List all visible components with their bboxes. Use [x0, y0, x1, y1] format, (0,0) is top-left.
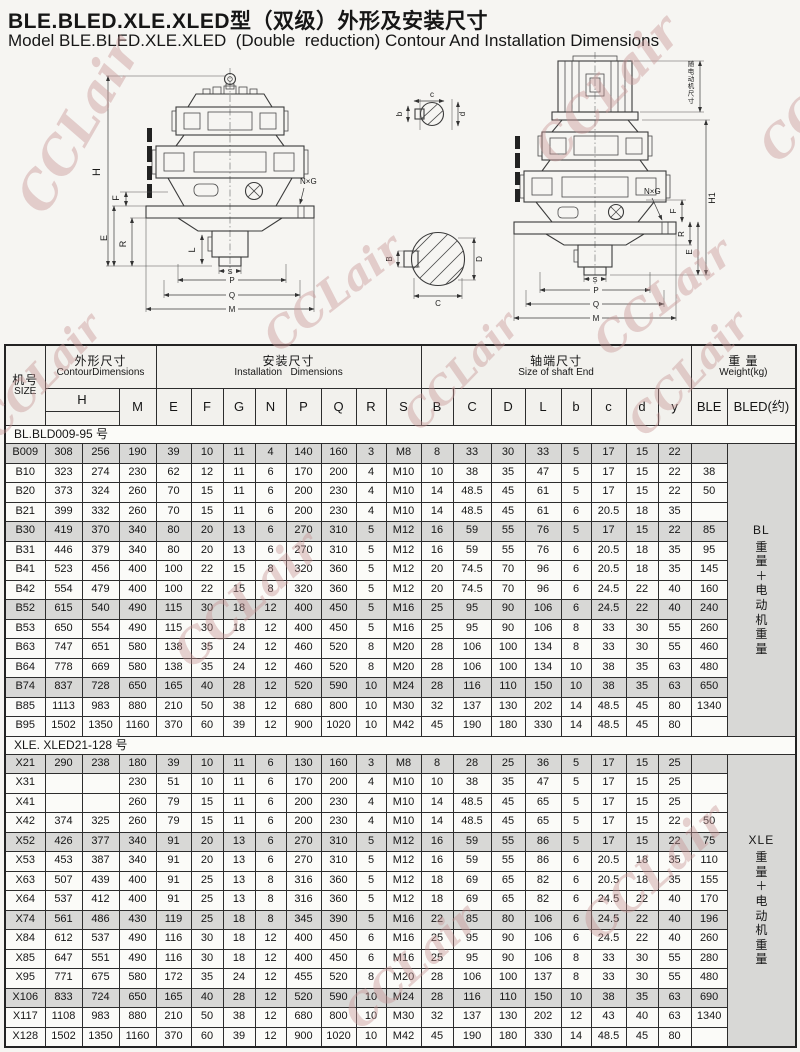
value-cell: 11 [223, 463, 255, 483]
value-cell: 439 [82, 871, 119, 891]
value-cell: 28 [421, 969, 453, 989]
value-cell: 479 [82, 580, 119, 600]
value-cell: 10 [356, 717, 386, 737]
value-cell: 260 [119, 813, 156, 833]
col-header-R: R [356, 389, 386, 426]
value-cell: 95 [691, 541, 727, 561]
col-header-Q: Q [321, 389, 356, 426]
value-cell: 4 [356, 813, 386, 833]
value-cell: 55 [491, 541, 525, 561]
input-shaft-section-view: c b d [395, 90, 467, 130]
value-cell: 6 [561, 852, 591, 872]
value-cell: M12 [386, 832, 421, 852]
value-cell: 180 [491, 717, 525, 737]
value-cell: 490 [119, 619, 156, 639]
value-cell: 270 [286, 522, 321, 542]
value-cell: 480 [691, 969, 727, 989]
value-cell: 155 [691, 871, 727, 891]
value-cell: 150 [525, 988, 561, 1008]
value-cell: 5 [356, 600, 386, 620]
weight-note-prefix: BL [753, 523, 770, 538]
value-cell: 377 [82, 832, 119, 852]
value-cell: 55 [658, 949, 691, 969]
value-cell: 15 [191, 502, 223, 522]
value-cell: 48.5 [453, 813, 491, 833]
value-cell: 373 [45, 483, 82, 503]
value-cell: M42 [386, 717, 421, 737]
value-cell: 33 [591, 969, 626, 989]
value-cell: 1340 [691, 697, 727, 717]
value-cell: 90 [491, 949, 525, 969]
value-cell: 5 [561, 754, 591, 774]
value-cell: 537 [45, 891, 82, 911]
value-cell [691, 717, 727, 737]
value-cell: 6 [561, 891, 591, 911]
value-cell: 65 [525, 793, 561, 813]
value-cell: 76 [525, 522, 561, 542]
value-cell: 308 [45, 444, 82, 464]
value-cell: 6 [561, 502, 591, 522]
table-row: X74561486430119251883453905M162285801066… [5, 910, 796, 930]
table-row: X5345338734091201362703105M1216595586620… [5, 852, 796, 872]
table-row: B1032327423062121161702004M1010383547517… [5, 463, 796, 483]
value-cell: 1350 [82, 717, 119, 737]
value-cell: 20.5 [591, 852, 626, 872]
value-cell: 590 [321, 988, 356, 1008]
value-cell: 24 [223, 658, 255, 678]
value-cell: 130 [491, 1008, 525, 1028]
value-cell: 25 [658, 793, 691, 813]
value-cell: 325 [82, 813, 119, 833]
value-cell: 5 [561, 463, 591, 483]
value-cell: 106 [525, 910, 561, 930]
value-cell: 25 [421, 930, 453, 950]
value-cell: 340 [119, 852, 156, 872]
value-cell: 47 [525, 774, 561, 794]
value-cell: 3 [356, 444, 386, 464]
value-cell: 1160 [119, 717, 156, 737]
value-cell: 160 [321, 754, 356, 774]
value-cell: 80 [658, 1027, 691, 1047]
value-cell: 35 [626, 658, 658, 678]
value-cell: 25 [421, 619, 453, 639]
value-cell: 387 [82, 852, 119, 872]
value-cell: 100 [491, 639, 525, 659]
value-cell: 28 [421, 678, 453, 698]
size-cell: B41 [5, 561, 45, 581]
dimensions-table: 机号 SIZE 外形尺寸 ContourDimensions 安装尺寸 Inst… [4, 344, 797, 1048]
value-cell: M10 [386, 502, 421, 522]
value-cell: 200 [286, 502, 321, 522]
value-cell: 6 [561, 930, 591, 950]
value-cell: 116 [453, 678, 491, 698]
value-cell: M16 [386, 600, 421, 620]
value-cell: M16 [386, 949, 421, 969]
dimensions-table-wrapper: 机号 SIZE 外形尺寸 ContourDimensions 安装尺寸 Inst… [4, 344, 797, 1048]
size-cell: B74 [5, 678, 45, 698]
value-cell: 38 [691, 463, 727, 483]
value-cell: 80 [658, 717, 691, 737]
size-cell: X41 [5, 793, 45, 813]
value-cell: 747 [45, 639, 82, 659]
value-cell: 615 [45, 600, 82, 620]
value-cell: 50 [191, 1008, 223, 1028]
value-cell: M20 [386, 658, 421, 678]
value-cell: 12 [255, 969, 286, 989]
value-cell: 28 [453, 754, 491, 774]
value-cell: 290 [45, 754, 82, 774]
col-header-H-empty [45, 412, 119, 426]
value-cell: 106 [453, 639, 491, 659]
value-cell: 6 [255, 793, 286, 813]
value-cell: 32 [421, 1008, 453, 1028]
value-cell: 240 [691, 600, 727, 620]
value-cell: 260 [691, 619, 727, 639]
value-cell: M10 [386, 793, 421, 813]
value-cell: 455 [286, 969, 321, 989]
value-cell: 15 [223, 580, 255, 600]
value-cell: 6 [561, 600, 591, 620]
value-cell: 47 [525, 463, 561, 483]
value-cell: 430 [119, 910, 156, 930]
value-cell: 20 [191, 832, 223, 852]
value-cell: 260 [119, 502, 156, 522]
weight-note-cell: XLE重量＋电动机重量 [727, 754, 796, 1047]
value-cell: 20.5 [591, 561, 626, 581]
value-cell: 20 [421, 580, 453, 600]
value-cell: 18 [626, 502, 658, 522]
value-cell: 38 [591, 678, 626, 698]
value-cell: 310 [321, 832, 356, 852]
size-cell: X117 [5, 1008, 45, 1028]
col-header-S: S [386, 389, 421, 426]
value-cell: 17 [591, 522, 626, 542]
value-cell: 25 [421, 600, 453, 620]
dim-label-p-right: P [593, 286, 598, 295]
value-cell: 10 [561, 658, 591, 678]
value-cell: 1340 [691, 1008, 727, 1028]
size-cell: X128 [5, 1027, 45, 1047]
value-cell: 460 [286, 658, 321, 678]
value-cell: 880 [119, 697, 156, 717]
table-row: X5242637734091201362703105M1216595586517… [5, 832, 796, 852]
value-cell: 1502 [45, 1027, 82, 1047]
value-cell: 172 [156, 969, 191, 989]
value-cell: 20 [191, 852, 223, 872]
value-cell: 95 [453, 600, 491, 620]
dim-label-r: R [118, 240, 128, 247]
value-cell: 39 [223, 717, 255, 737]
table-row: B647786695801383524124605208M20281061001… [5, 658, 796, 678]
value-cell: 75 [691, 832, 727, 852]
value-cell: 8 [561, 639, 591, 659]
value-cell: 15 [223, 561, 255, 581]
value-cell: 5 [561, 774, 591, 794]
weight-note-prefix: XLE [749, 833, 775, 848]
value-cell: 12 [255, 949, 286, 969]
value-cell: 4 [356, 463, 386, 483]
value-cell: 100 [156, 561, 191, 581]
value-cell: 17 [591, 832, 626, 852]
dim-label-m-right: M [593, 314, 600, 323]
value-cell: 669 [82, 658, 119, 678]
value-cell: 230 [321, 793, 356, 813]
size-cell: B64 [5, 658, 45, 678]
value-cell: 12 [255, 717, 286, 737]
size-cell: X84 [5, 930, 45, 950]
value-cell: 11 [223, 444, 255, 464]
value-cell: 18 [223, 619, 255, 639]
value-cell: 45 [491, 483, 525, 503]
size-cell: X106 [5, 988, 45, 1008]
value-cell: 17 [591, 483, 626, 503]
value-cell: 90 [491, 619, 525, 639]
value-cell: 650 [119, 678, 156, 698]
value-cell: 238 [82, 754, 119, 774]
dim-label-C: C [435, 299, 441, 308]
value-cell: M16 [386, 930, 421, 950]
value-cell: 5 [561, 832, 591, 852]
value-cell: 22 [626, 600, 658, 620]
value-cell: 39 [223, 1027, 255, 1047]
col-header-N: N [255, 389, 286, 426]
value-cell: 200 [286, 483, 321, 503]
value-cell: 400 [286, 619, 321, 639]
group-header-installation: 安装尺寸 Installation Dimensions [156, 345, 421, 389]
value-cell: 5 [356, 522, 386, 542]
value-cell: 48.5 [453, 793, 491, 813]
table-row: B637476515801383524124605208M20281061001… [5, 639, 796, 659]
value-cell: 35 [658, 852, 691, 872]
size-cell: X95 [5, 969, 45, 989]
dim-label-motor: 随电动机尺寸 [688, 59, 695, 105]
value-cell: 983 [82, 1008, 119, 1028]
value-cell: 400 [119, 580, 156, 600]
dim-label-q-right: Q [593, 300, 599, 309]
value-cell: 5 [561, 793, 591, 813]
value-cell: 18 [223, 910, 255, 930]
value-cell: 59 [453, 522, 491, 542]
table-section-label-row: XLE. XLED21-128 号 [5, 736, 796, 754]
value-cell: 374 [45, 813, 82, 833]
value-cell: 6 [255, 813, 286, 833]
value-cell: M12 [386, 891, 421, 911]
value-cell: 453 [45, 852, 82, 872]
value-cell: 4 [356, 502, 386, 522]
page-title-en: Model BLE.BLED.XLE.XLED (Double reductio… [8, 31, 659, 51]
size-cell: B85 [5, 697, 45, 717]
value-cell: M10 [386, 463, 421, 483]
value-cell: 74.5 [453, 580, 491, 600]
group-header-contour: 外形尺寸 ContourDimensions [45, 345, 156, 389]
value-cell: 6 [255, 522, 286, 542]
value-cell: 96 [525, 580, 561, 600]
value-cell: 316 [286, 871, 321, 891]
value-cell: 1160 [119, 1027, 156, 1047]
dim-label-r-right: R [677, 231, 686, 237]
value-cell: M24 [386, 678, 421, 698]
left-gearbox-drawing: H F E R L S P Q [91, 68, 317, 314]
col-header-E: E [156, 389, 191, 426]
value-cell: 5 [356, 891, 386, 911]
size-cell: B53 [5, 619, 45, 639]
value-cell: 85 [453, 910, 491, 930]
value-cell: 270 [286, 541, 321, 561]
value-cell: 22 [626, 580, 658, 600]
value-cell: 12 [191, 463, 223, 483]
value-cell: 18 [626, 561, 658, 581]
value-cell: 38 [591, 658, 626, 678]
value-cell: 96 [525, 561, 561, 581]
value-cell: 180 [491, 1027, 525, 1047]
dim-label-c-small: c [430, 90, 434, 99]
value-cell: 30 [191, 949, 223, 969]
value-cell: 210 [156, 1008, 191, 1028]
value-cell: 771 [45, 969, 82, 989]
value-cell: 140 [286, 444, 321, 464]
value-cell: 106 [453, 658, 491, 678]
value-cell: 35 [491, 463, 525, 483]
dim-label-f-right: F [669, 208, 678, 213]
value-cell: 45 [626, 1027, 658, 1047]
value-cell: 520 [286, 678, 321, 698]
value-cell: 22 [658, 463, 691, 483]
value-cell: 10 [421, 774, 453, 794]
value-cell: 1020 [321, 717, 356, 737]
value-cell: 100 [491, 658, 525, 678]
value-cell: 6 [255, 852, 286, 872]
value-cell: 6 [255, 754, 286, 774]
value-cell: 15 [626, 483, 658, 503]
value-cell: 202 [525, 697, 561, 717]
value-cell: 100 [156, 580, 191, 600]
value-cell: 400 [286, 930, 321, 950]
value-cell: 310 [321, 852, 356, 872]
value-cell: 370 [82, 522, 119, 542]
value-cell [82, 774, 119, 794]
value-cell: 345 [286, 910, 321, 930]
value-cell: 10 [356, 678, 386, 698]
value-cell: 55 [491, 832, 525, 852]
value-cell: 8 [356, 969, 386, 989]
weight-note-cell: BL重量＋电动机重量 [727, 444, 796, 737]
value-cell: 28 [421, 639, 453, 659]
value-cell: 14 [421, 813, 453, 833]
value-cell: 40 [658, 580, 691, 600]
value-cell: 55 [491, 852, 525, 872]
value-cell: 138 [156, 639, 191, 659]
value-cell: M30 [386, 1008, 421, 1028]
value-cell: 18 [223, 949, 255, 969]
value-cell: 11 [223, 754, 255, 774]
value-cell: 8 [356, 658, 386, 678]
table-row: X6453741240091251383163605M1218696582624… [5, 891, 796, 911]
value-cell: 210 [156, 697, 191, 717]
col-header-G: G [223, 389, 255, 426]
value-cell: 10 [356, 988, 386, 1008]
value-cell: 3 [356, 754, 386, 774]
value-cell: 537 [82, 930, 119, 950]
value-cell: 486 [82, 910, 119, 930]
value-cell: 360 [321, 891, 356, 911]
value-cell: 5 [356, 580, 386, 600]
value-cell: 13 [223, 871, 255, 891]
value-cell: 45 [626, 697, 658, 717]
value-cell: 38 [453, 774, 491, 794]
value-cell [691, 444, 727, 464]
value-cell: 14 [561, 697, 591, 717]
table-row: B42554479400100221583203605M122074.57096… [5, 580, 796, 600]
value-cell: 490 [119, 949, 156, 969]
value-cell: 12 [255, 639, 286, 659]
dim-label-m: M [229, 305, 236, 314]
value-cell: 79 [156, 813, 191, 833]
value-cell: 651 [82, 639, 119, 659]
value-cell: 12 [255, 697, 286, 717]
value-cell: 460 [286, 639, 321, 659]
value-cell: 106 [525, 619, 561, 639]
value-cell: 12 [255, 619, 286, 639]
value-cell: 33 [525, 444, 561, 464]
value-cell: 25 [491, 754, 525, 774]
value-cell: 16 [421, 832, 453, 852]
value-cell: 12 [255, 1008, 286, 1028]
value-cell: 15 [191, 793, 223, 813]
value-cell: 11 [223, 793, 255, 813]
table-row: X117110898388021050381268080010M30321371… [5, 1008, 796, 1028]
value-cell: 110 [491, 678, 525, 698]
size-cell: X42 [5, 813, 45, 833]
value-cell: 15 [626, 813, 658, 833]
col-header-L: L [525, 389, 561, 426]
value-cell: 32 [421, 697, 453, 717]
value-cell: 15 [626, 774, 658, 794]
value-cell: 332 [82, 502, 119, 522]
size-cell: X63 [5, 871, 45, 891]
size-cell: B10 [5, 463, 45, 483]
table-row: B3144637934080201362703105M1216595576620… [5, 541, 796, 561]
value-cell: 33 [591, 639, 626, 659]
value-cell: 400 [119, 561, 156, 581]
value-cell: 137 [525, 969, 561, 989]
value-cell: 8 [421, 754, 453, 774]
value-cell: 24 [223, 969, 255, 989]
value-cell: 48.5 [591, 697, 626, 717]
value-cell: 165 [156, 988, 191, 1008]
value-cell: 900 [286, 717, 321, 737]
value-cell: 450 [321, 949, 356, 969]
value-cell: 69 [453, 871, 491, 891]
value-cell: 22 [626, 930, 658, 950]
value-cell: 17 [591, 754, 626, 774]
value-cell: M12 [386, 871, 421, 891]
value-cell: 6 [255, 463, 286, 483]
value-cell: 50 [191, 697, 223, 717]
value-cell: 1113 [45, 697, 82, 717]
value-cell: 25 [421, 949, 453, 969]
value-cell: 650 [119, 988, 156, 1008]
value-cell: 15 [626, 463, 658, 483]
value-cell: 800 [321, 1008, 356, 1028]
value-cell: 35 [658, 541, 691, 561]
size-cell: B21 [5, 502, 45, 522]
value-cell: 28 [421, 658, 453, 678]
right-gearbox-with-motor-drawing: 随电动机尺寸 H1 N×G F R E S P [514, 52, 717, 323]
value-cell: 8 [356, 639, 386, 659]
value-cell: M12 [386, 852, 421, 872]
value-cell: 680 [286, 1008, 321, 1028]
value-cell: 86 [525, 852, 561, 872]
